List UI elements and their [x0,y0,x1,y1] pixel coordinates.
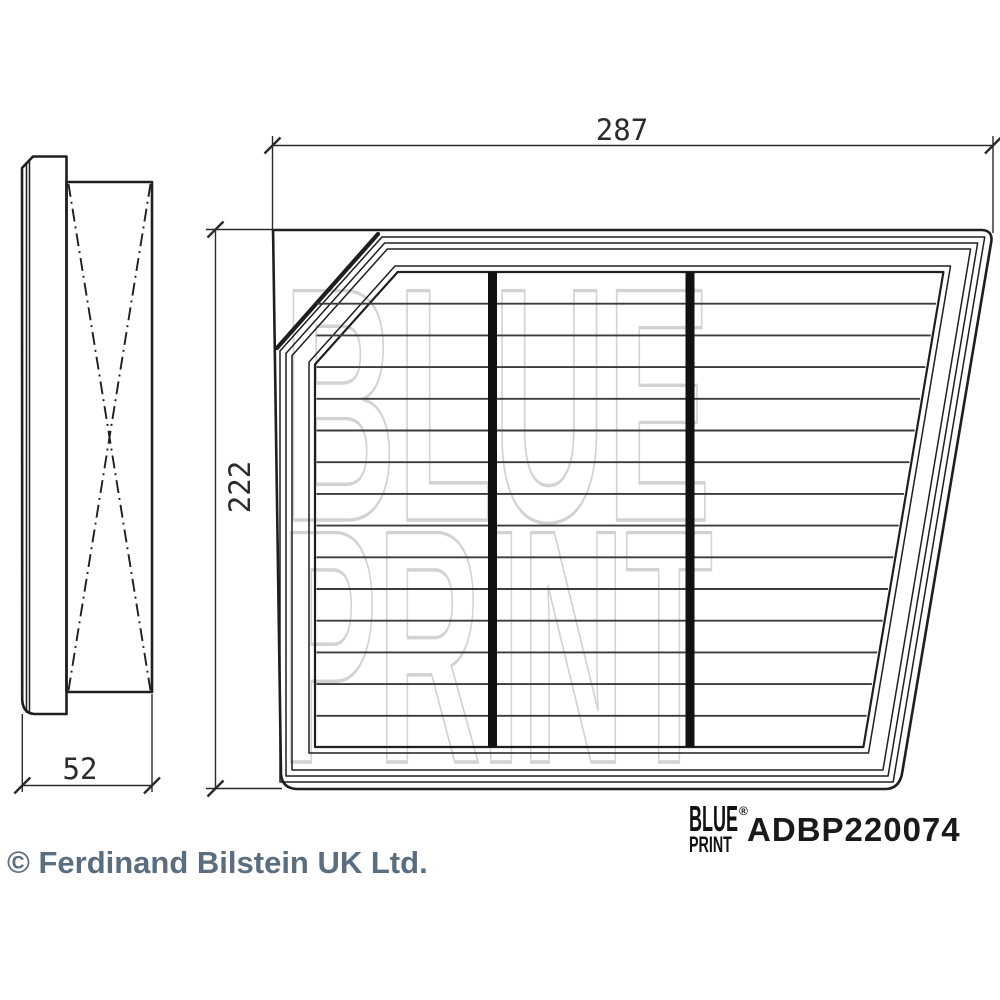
brand-logo: BLUE PRINT ® [689,799,748,856]
copyright-notice: © Ferdinand Bilstein UK Ltd. [7,845,428,880]
dim-label-52: 52 [63,752,98,786]
air-filter-technical-drawing: BLUE PRINT 287 222 [0,0,1000,1000]
dim-label-222: 222 [223,461,257,513]
support-bar-left [488,272,497,747]
dimension-width-287: 287 [265,113,1000,233]
side-view [22,157,152,715]
logo-word-print: PRINT [689,832,732,857]
dimension-height-222: 222 [206,222,282,797]
dim-label-287: 287 [596,113,648,147]
side-view-panel-outline [22,157,67,715]
part-number: ADBP220074 [747,811,961,848]
dimension-depth-52: 52 [14,694,160,794]
support-bar-right [686,272,695,747]
drawing-svg: BLUE PRINT 287 222 [0,0,1000,1000]
